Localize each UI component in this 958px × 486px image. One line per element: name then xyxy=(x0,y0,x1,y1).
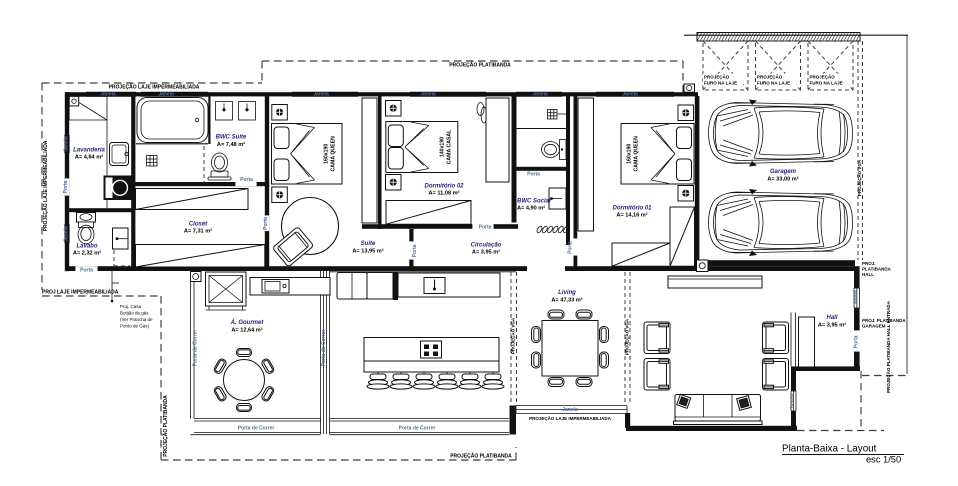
svg-text:Living: Living xyxy=(558,290,576,296)
svg-text:PROJEÇÃO PLATIBANDA: PROJEÇÃO PLATIBANDA xyxy=(449,62,511,69)
svg-text:A= 2,32 m²: A= 2,32 m² xyxy=(73,250,101,257)
svg-text:A= 3,95 m²: A= 3,95 m² xyxy=(818,322,846,329)
svg-text:(Ver Prancha de: (Ver Prancha de xyxy=(120,317,153,322)
svg-text:Janela: Janela xyxy=(622,92,638,98)
svg-text:PROJEÇÃO VGA: PROJEÇÃO VGA xyxy=(510,317,516,354)
svg-text:A= 47,33 m²: A= 47,33 m² xyxy=(551,297,582,304)
svg-text:FURO NA LAJE: FURO NA LAJE xyxy=(810,81,843,86)
svg-text:PROJEÇÃO PLATIBANDA: PROJEÇÃO PLATIBANDA xyxy=(450,453,512,460)
svg-text:Porta de Correr: Porta de Correr xyxy=(238,425,275,431)
svg-text:FURO NA LAJE: FURO NA LAJE xyxy=(757,81,790,86)
svg-text:PROJEÇÃO LAJE IMPERMEABILIAD: PROJEÇÃO LAJE IMPERMEABILIADA xyxy=(109,84,200,91)
svg-text:A= 3,95 m²: A= 3,95 m² xyxy=(472,249,500,256)
svg-text:FURO NA LAJE: FURO NA LAJE xyxy=(704,81,737,86)
svg-text:Suite: Suite xyxy=(361,241,376,247)
svg-text:PROJEÇÃO VGA: PROJEÇÃO VGA xyxy=(624,318,630,355)
svg-text:Janela: Janela xyxy=(313,92,329,98)
svg-text:Closet: Closet xyxy=(189,222,208,228)
svg-text:PROJEÇÃO: PROJEÇÃO xyxy=(704,74,730,80)
svg-text:HALL: HALL xyxy=(862,272,874,277)
svg-text:160x190: 160x190 xyxy=(324,144,330,164)
svg-text:Dormitório 02: Dormitório 02 xyxy=(424,184,464,190)
svg-text:A= 14,16 m²: A= 14,16 m² xyxy=(616,212,647,219)
svg-text:Lavanderia: Lavanderia xyxy=(73,148,105,154)
svg-text:A= 7,31 m²: A= 7,31 m² xyxy=(184,228,212,235)
svg-text:Janela: Janela xyxy=(64,136,70,152)
svg-text:A= 13,95 m²: A= 13,95 m² xyxy=(352,248,383,255)
svg-text:PLATIBANDA: PLATIBANDA xyxy=(862,267,892,272)
svg-text:Proj. Casa: Proj. Casa xyxy=(120,304,142,309)
svg-text:Porta de Correr: Porta de Correr xyxy=(399,425,436,431)
svg-text:PROJEÇÃO LAJE IMPERMEABILIAD: PROJEÇÃO LAJE IMPERMEABILIADA xyxy=(42,140,49,231)
svg-text:A= 33,00 m²: A= 33,00 m² xyxy=(767,176,798,183)
svg-text:Janela: Janela xyxy=(158,92,174,98)
svg-text:Ponto de Gás): Ponto de Gás) xyxy=(120,324,150,329)
svg-text:Lavabo: Lavabo xyxy=(76,244,97,250)
svg-text:CAMA CASAL: CAMA CASAL xyxy=(446,129,452,165)
svg-text:GARAGEM: GARAGEM xyxy=(862,324,886,329)
svg-text:Janela: Janela xyxy=(64,226,70,242)
svg-text:A= 12,64 m²: A= 12,64 m² xyxy=(231,327,262,334)
svg-text:PROJEÇÃO PLATIBANDA: PROJEÇÃO PLATIBANDA xyxy=(162,395,169,457)
svg-text:A= 11,08 m²: A= 11,08 m² xyxy=(429,190,460,197)
svg-text:PROJEÇÃO LAJE IMPERMEABILIAD: PROJEÇÃO LAJE IMPERMEABILIADA xyxy=(529,415,612,421)
svg-text:Porta: Porta xyxy=(80,268,93,274)
svg-text:Janela: Janela xyxy=(853,290,859,306)
svg-text:Porta: Porta xyxy=(263,217,269,230)
svg-text:PROJEÇÃO PLATIBANDA HALL EN: PROJEÇÃO PLATIBANDA HALL ENTRADA xyxy=(885,300,891,392)
svg-text:BWC Social: BWC Social xyxy=(517,199,551,205)
svg-text:Janela: Janela xyxy=(790,394,796,410)
svg-text:PROJ. PLATIBANDA: PROJ. PLATIBANDA xyxy=(862,318,906,323)
svg-text:Porta: Porta xyxy=(527,171,540,177)
svg-text:PROJEÇÃO VGA: PROJEÇÃO VGA xyxy=(856,159,862,196)
svg-text:160x190: 160x190 xyxy=(627,144,633,164)
svg-text:Porta de Correr: Porta de Correr xyxy=(321,330,327,367)
svg-text:140x190: 140x190 xyxy=(439,137,445,157)
svg-text:Á. Gourmet: Á. Gourmet xyxy=(230,319,265,326)
svg-text:Porta: Porta xyxy=(63,180,69,193)
svg-text:Hall: Hall xyxy=(826,315,837,321)
svg-text:Janela: Janela xyxy=(562,407,578,413)
svg-text:Porta: Porta xyxy=(568,241,574,254)
svg-text:A= 4,90 m²: A= 4,90 m² xyxy=(517,205,545,212)
svg-text:CAMA QUEEN: CAMA QUEEN xyxy=(634,136,640,172)
svg-text:Botijão de gás: Botijão de gás xyxy=(120,311,149,316)
svg-text:Dormitório 01: Dormitório 01 xyxy=(612,206,652,212)
svg-text:Porta: Porta xyxy=(412,244,418,257)
svg-text:Janela: Janela xyxy=(532,92,548,98)
svg-text:Porta de Correr: Porta de Correr xyxy=(193,330,199,367)
svg-text:PROJ LAJE IMPERMEABILIADA: PROJ LAJE IMPERMEABILIADA xyxy=(42,290,119,296)
svg-text:A= 4,64 m²: A= 4,64 m² xyxy=(75,154,103,161)
svg-text:Porta: Porta xyxy=(853,335,859,348)
svg-text:Porta: Porta xyxy=(240,177,253,183)
svg-text:BWC Suite: BWC Suite xyxy=(216,135,247,141)
svg-text:PROJ.: PROJ. xyxy=(862,261,876,266)
svg-text:Garagem: Garagem xyxy=(770,169,797,175)
svg-text:esc 1/50: esc 1/50 xyxy=(866,455,901,465)
svg-text:Porta: Porta xyxy=(479,224,492,230)
svg-text:A= 7,48 m²: A= 7,48 m² xyxy=(217,141,245,148)
svg-text:Planta-Baixa - Layout: Planta-Baixa - Layout xyxy=(782,444,877,455)
svg-text:PROJEÇÃO: PROJEÇÃO xyxy=(757,74,783,80)
svg-text:Janela: Janela xyxy=(420,92,436,98)
svg-text:Circulação: Circulação xyxy=(471,243,502,249)
svg-text:PROJEÇÃO: PROJEÇÃO xyxy=(810,74,836,80)
svg-text:CAMA QUEEN: CAMA QUEEN xyxy=(331,136,337,172)
